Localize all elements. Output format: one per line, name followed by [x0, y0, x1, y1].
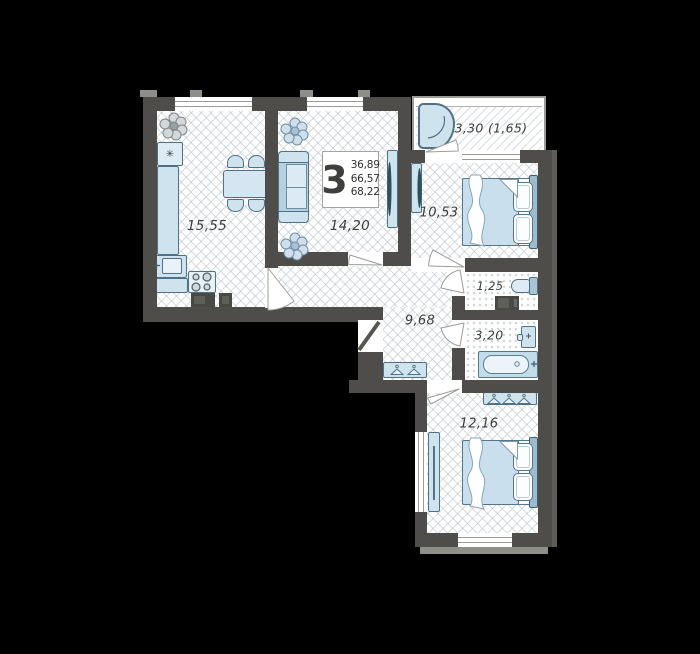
- facade-tab: [300, 90, 313, 97]
- bedroom-top-area-label: 10,53: [420, 206, 459, 221]
- kitchen-area-label: 15,55: [187, 218, 227, 234]
- chair: [248, 155, 265, 168]
- bath-sink-knob: [517, 334, 523, 341]
- bed-bottom-pillow: [513, 473, 533, 501]
- kitchen-vent-duct: [191, 293, 215, 307]
- pillow-seam: [516, 185, 530, 209]
- wall-kitchen-living: [265, 111, 278, 268]
- sofa-armrest-top: [279, 152, 308, 163]
- living-door-opening: [348, 252, 383, 266]
- wall-kitchen-bottom: [143, 307, 383, 322]
- wall-entry-lower: [358, 352, 383, 393]
- chair: [227, 155, 244, 168]
- snowflake-icon: ✳: [166, 149, 174, 160]
- balcony-area-label: 3,30 (1,65): [455, 121, 528, 136]
- kitchen-counter-left: [157, 166, 179, 255]
- sofa-armrest-bottom: [279, 211, 308, 222]
- stove: [188, 271, 216, 293]
- pillow-seam: [516, 217, 530, 241]
- toilet-tank: [529, 277, 538, 295]
- toilet-bowl: [511, 279, 530, 293]
- sofa: [278, 151, 309, 223]
- bed-top-blanket: [462, 178, 519, 246]
- living-area-value: 36,89: [351, 159, 380, 173]
- bathroom-area-label: 3,20: [474, 328, 503, 343]
- facade-tab: [358, 90, 370, 97]
- facade-ledge-bottom: [420, 547, 548, 554]
- bed-top-pillow: [513, 182, 533, 212]
- balcony-door-opening: [425, 150, 462, 163]
- wall-bedroom-bottom-right: [538, 390, 552, 547]
- facade-edge-right: [552, 150, 557, 547]
- wc-door-opening: [452, 270, 465, 296]
- pillow-seam: [516, 476, 530, 498]
- wall-living-hall: [265, 252, 411, 266]
- washer-door: [498, 298, 509, 308]
- tv-stand-living: [387, 150, 398, 228]
- sofa-cushion-split: [287, 187, 306, 188]
- main-area-value: 66,57: [351, 173, 380, 187]
- wardrobe: [483, 392, 537, 405]
- rooms-count: 3: [321, 161, 347, 199]
- bathtub: [478, 351, 538, 378]
- kitchen-sink-basin: [162, 258, 182, 274]
- coat-rack: [383, 362, 427, 378]
- kitchen-vent-duct-2: [219, 293, 232, 307]
- bath-sink: [521, 326, 536, 348]
- bed-bottom-blanket: [462, 440, 519, 505]
- bedroom-bottom-side-window: [415, 432, 427, 512]
- hall-floor-upper: [278, 266, 452, 307]
- bedroom-bottom-door-opening: [427, 380, 462, 393]
- vent-detail: [194, 296, 205, 304]
- kitchen-counter-bottom: [153, 278, 188, 293]
- pillow-seam: [516, 446, 530, 468]
- kitchen-window: [175, 97, 252, 111]
- facade-tab: [140, 90, 157, 97]
- wc-area-label: 1,25: [477, 279, 504, 293]
- living-area-label: 14,20: [330, 218, 370, 234]
- bathroom-door-opening: [452, 320, 465, 348]
- bed-bottom-pillow: [513, 443, 533, 471]
- facade-tab: [190, 90, 202, 97]
- bedroom-bottom-window: [458, 533, 512, 547]
- wall-left: [143, 111, 157, 322]
- living-window: [307, 97, 363, 111]
- floor-plan: ✳: [0, 0, 700, 654]
- entry-door-opening: [358, 320, 383, 352]
- wall-right-upper: [538, 150, 552, 390]
- dresser-mirror: [428, 432, 440, 512]
- wall-living-right: [398, 111, 411, 266]
- hallway-area-label: 9,68: [405, 314, 435, 329]
- wall-bedroom-top-bottom: [465, 258, 538, 272]
- vent-detail: [222, 296, 229, 304]
- bedroom-top-window: [462, 150, 520, 163]
- wall-wc-bath-divider: [465, 310, 538, 320]
- unit-info-box: 3 36,89 66,57 68,22: [322, 151, 379, 208]
- washing-machine: [495, 296, 519, 310]
- total-area-value: 68,22: [351, 186, 380, 200]
- bed-top-pillow: [513, 214, 533, 244]
- washer-panel: [514, 299, 517, 307]
- fridge: ✳: [157, 142, 183, 166]
- kitchen-sink-unit: [153, 255, 187, 278]
- bedroom-bottom-area-label: 12,16: [460, 417, 499, 432]
- mirror-line: [433, 446, 435, 500]
- kitchen-door-opening: [265, 268, 278, 308]
- sofa-seat: [286, 164, 307, 209]
- bathtub-basin: [483, 355, 529, 374]
